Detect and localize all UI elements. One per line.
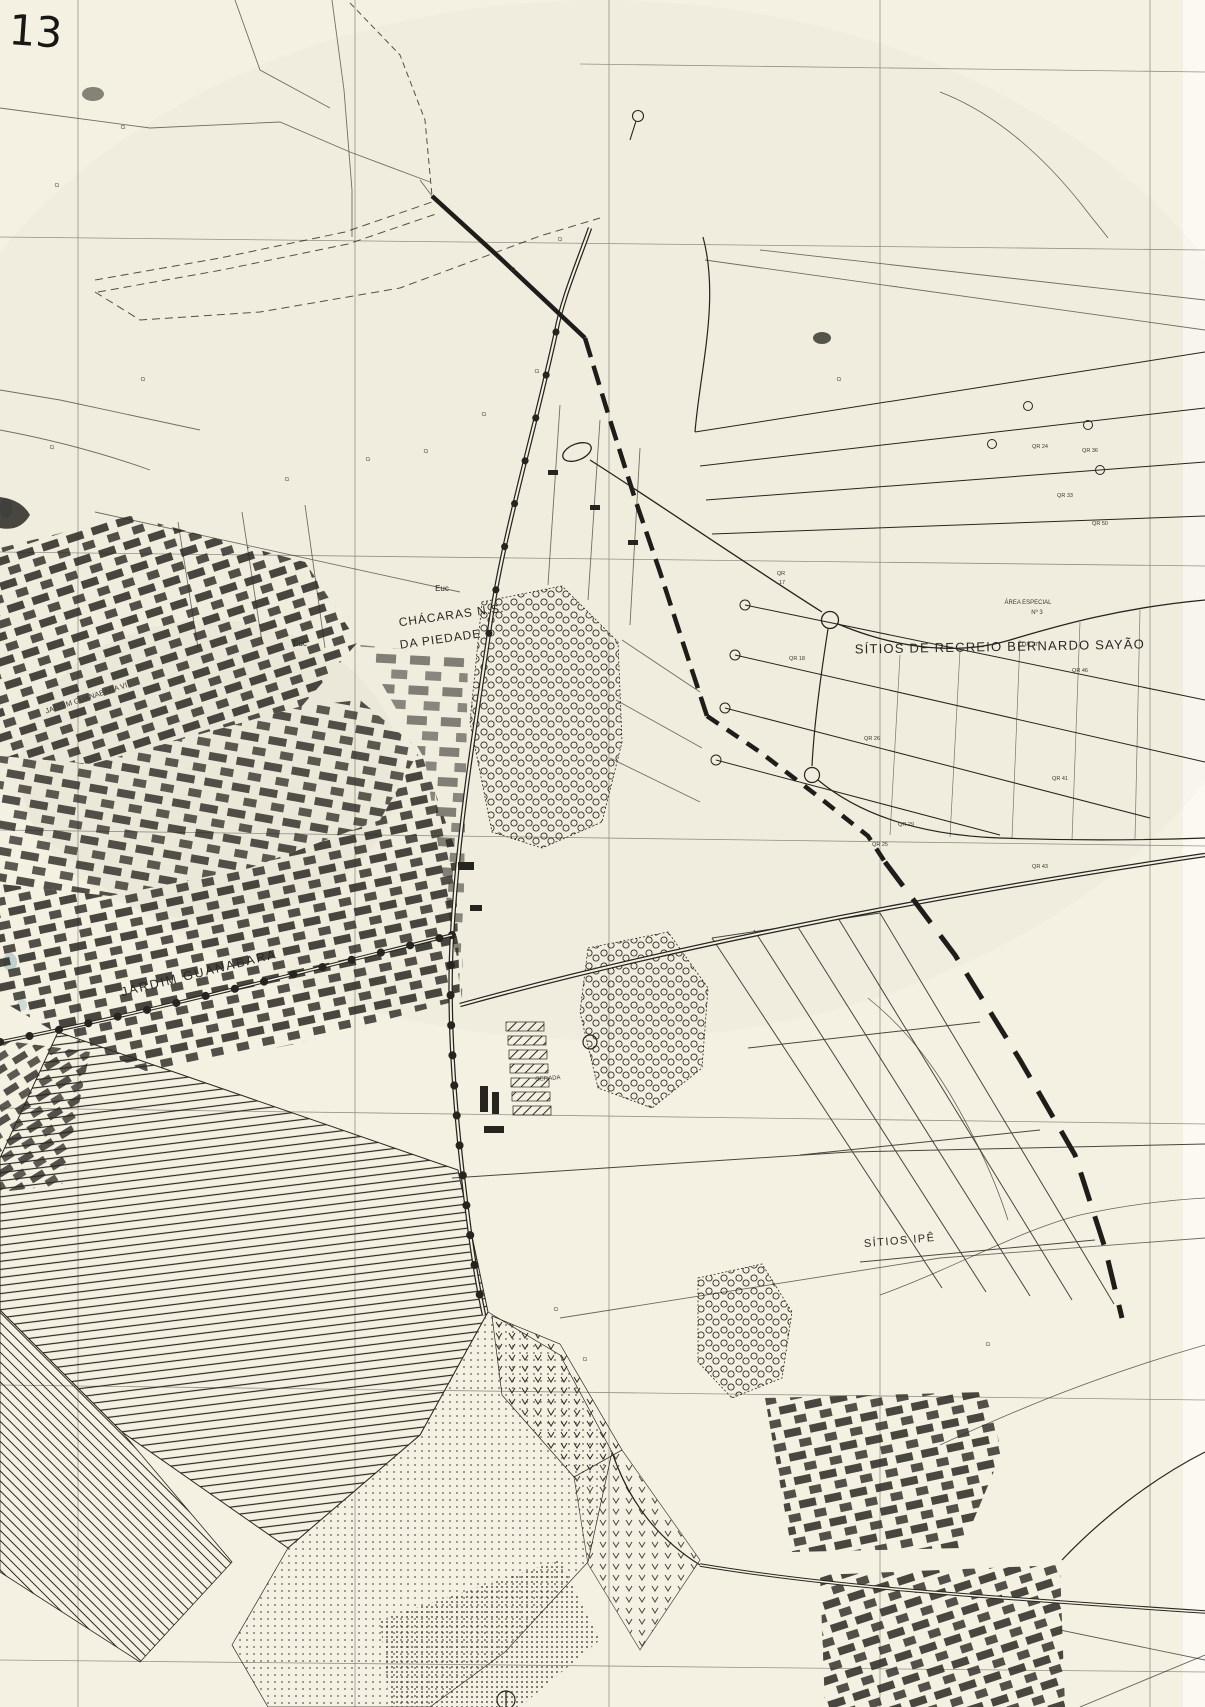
map-label-ci-11: Ci: [558, 237, 563, 243]
map-label-qr-17-line1: QR: [777, 571, 785, 577]
map-label-qr-46: QR 46: [1072, 668, 1088, 674]
map-label-qr-43: QR 43: [1032, 864, 1048, 870]
map-label-qr-25: QR 25: [872, 842, 888, 848]
map-label-euc-1: Euc: [435, 584, 449, 593]
map-label-qr-50: QR 50: [1092, 521, 1108, 527]
map-label-ci-3: Ci: [141, 377, 146, 383]
map-label-ci-2: Ci: [55, 183, 60, 189]
map-label-euc-2: Euc: [293, 639, 307, 648]
map-label-sheet-number: 13: [7, 5, 64, 58]
map-label-area-especial-line2: Nº 3: [1031, 609, 1043, 616]
map-label-qr-17-line2: 17: [779, 580, 785, 586]
map-label-ci-8: Ci: [482, 412, 487, 418]
map-label-ci-7: Ci: [424, 449, 429, 455]
map-sheet-page: 13EucEucCHÁCARAS N.S.DA PIEDADESÍTIOS DE…: [0, 0, 1205, 1707]
map-label-qr-18: QR 18: [789, 656, 805, 662]
map-label-qr-26: QR 26: [864, 736, 880, 742]
map-label-ci-4: Ci: [50, 445, 55, 451]
pond-blob: [82, 87, 104, 101]
map-label-qr-41: QR 41: [1052, 776, 1068, 782]
map-label-ci-6: Ci: [366, 457, 371, 463]
map-label-qr-27: QR 27: [1022, 642, 1038, 648]
map-canvas: 13EucEucCHÁCARAS N.S.DA PIEDADESÍTIOS DE…: [0, 0, 1205, 1707]
map-label-qr-33: QR 33: [1057, 493, 1073, 499]
map-label-ci-14: Ci: [583, 1357, 588, 1363]
map-label-ci-9: Ci: [535, 369, 540, 375]
map-label-ci-10: Ci: [511, 267, 516, 273]
settlement-grid-bottom-right: [765, 1392, 1002, 1552]
map-label-area-especial-line1: ÁREA ESPECIAL: [1004, 599, 1052, 606]
map-label-ci-12: Ci: [837, 377, 842, 383]
map-label-ci-1: Ci: [121, 125, 126, 131]
map-label-qr-24: QR 24: [1032, 444, 1048, 450]
map-label-ci-5: Ci: [285, 477, 290, 483]
map-label-ci-15: Ci: [986, 1342, 991, 1348]
map-label-qr-36: QR 36: [1082, 448, 1098, 454]
map-label-ci-13: Ci: [554, 1307, 559, 1313]
map-label-qr-29: QR 29: [898, 822, 914, 828]
